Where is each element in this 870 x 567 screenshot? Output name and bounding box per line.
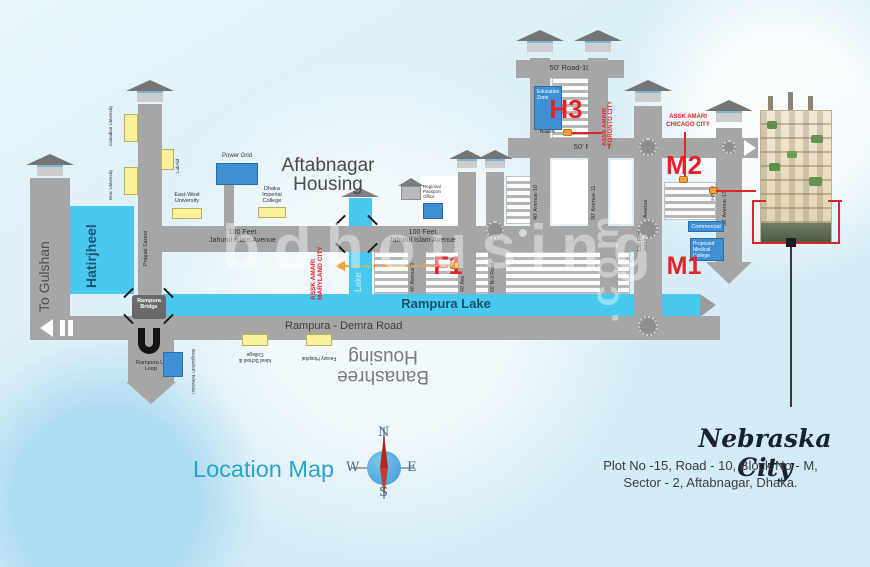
n3-road-label: 60' N-3 Road [490, 254, 504, 292]
hatirjheel-lake: Hatirjheel [70, 206, 134, 294]
road-gate-icon [516, 30, 564, 52]
road-west-bar-icon [60, 320, 65, 336]
chicago-pointer-line [684, 132, 686, 178]
road-9-small-label: Road-9 [540, 129, 564, 134]
project-address-line2: Sector - 2, Aftabnagar, Dhaka. [588, 475, 833, 492]
toronto-city-label: ASSK AMARI TORONTO CITY [602, 88, 624, 146]
building-frame [752, 200, 840, 244]
roundabout-icon [486, 221, 504, 239]
chicago-city-label: ASSK AMARI CHICAGO CITY [660, 114, 716, 132]
avenue-100ft-label-east: 100 Feet Jahurul Islam Avenue [375, 229, 470, 251]
farazy-hospital-box [306, 334, 332, 346]
rampura-bridge-box: Rampura Bridge [132, 295, 166, 319]
leader-node-icon [786, 238, 796, 247]
uloop-arrow-icon [126, 382, 176, 404]
to-gulshan-label: To Gulshan [36, 192, 64, 312]
labaid-label: LabAid [175, 147, 185, 173]
passport-box [423, 203, 443, 219]
ideal-school-box [242, 334, 268, 346]
dhaka-imperial-box [258, 207, 286, 218]
road-9-exit-arrow-icon [744, 140, 756, 156]
btv-label: Bangladesh Television [185, 349, 196, 383]
lake-end-arrow-icon [700, 294, 716, 317]
minor-road-b [486, 172, 504, 226]
block-m1-label: M1 [660, 252, 708, 282]
road-gate-icon [26, 154, 74, 176]
roundabout-icon [638, 219, 658, 239]
avenue-100ft-label-l1: 100 Feet [195, 229, 290, 237]
building-plant-icon [769, 163, 780, 171]
building-spire-icon [788, 92, 793, 112]
canadian-university-box [124, 114, 138, 142]
roundabout-icon [722, 140, 736, 154]
banashree-title-l1: Banashree [318, 366, 448, 386]
road-gate-icon [126, 80, 174, 102]
building-frame-tick [828, 200, 842, 202]
project-address-line1: Plot No -15, Road - 10, Block No - M, [588, 458, 833, 475]
toronto-l2: TORONTO CITY [608, 88, 614, 146]
pragati-sarani-road: Pragati Sarani [138, 104, 162, 316]
hatirjheel-label: Hatirjheel [84, 212, 120, 288]
road-dot-icon [519, 229, 527, 237]
project-address: Plot No -15, Road - 10, Block No - M, Se… [588, 458, 833, 498]
aftabnagar-title-l2: Housing [278, 175, 378, 194]
road-west-arrow-icon [40, 319, 53, 337]
road-gate-icon [477, 150, 513, 168]
commercial-box: Commercial [688, 221, 724, 232]
east-west-university-label: East-West University [168, 192, 206, 207]
btv-box [163, 352, 183, 377]
aftabnagar-title: Aftabnagar Housing [278, 156, 378, 198]
location-map-canvas: Hatirjheel Rampura Lake Lake To Gulshan … [0, 0, 870, 567]
compass-w: W [346, 460, 359, 475]
compass-e: E [407, 460, 417, 475]
plots-mid [506, 176, 532, 224]
brac-university-box [124, 167, 138, 195]
plot-white-2 [552, 160, 588, 224]
avenue-100ft-label-l2: Jahurul Islam Avenue [195, 237, 290, 245]
canadian-university-label: Canadian University [108, 112, 123, 146]
compass-n: N [378, 425, 389, 440]
chicago-l1: ASSK AMARI [660, 114, 716, 122]
building-plant-icon [767, 121, 777, 129]
power-grid-label: Power Grid [213, 153, 261, 162]
power-grid-stem [224, 184, 234, 226]
building-plant-icon [809, 177, 822, 186]
chicago-l2: CHICAGO CITY [660, 122, 716, 130]
maryland-l2: MARYLAND CITY [317, 226, 324, 300]
passport-roof-icon [398, 178, 424, 186]
toronto-pointer-line [572, 132, 602, 134]
rampura-lake-label: Rampura Lake [398, 297, 494, 314]
road-gate-icon [574, 30, 622, 52]
passport-label: Regional Passport Office [423, 184, 447, 202]
roundabout-icon [639, 138, 657, 156]
road-west-bar-icon [68, 320, 73, 336]
farazy-hospital-label: Farazy Hospital [300, 348, 338, 360]
n3-road: 60' N-3 Road [488, 252, 506, 294]
toronto-site-marker [563, 129, 572, 136]
u-loop-icon [138, 328, 160, 354]
avenue-9-label: 40' Avenue-9 [410, 254, 424, 292]
to-gulshan-road: To Gulshan [30, 178, 70, 324]
pragati-sarani-label: Pragati Sarani [143, 200, 158, 266]
compass-s: S [379, 485, 388, 500]
avenue-10-label: 40' Avenue-10 [533, 162, 547, 220]
east-west-university-box [172, 208, 202, 219]
block-h3-label: H3 [544, 94, 588, 124]
project-name: Nebraska City [680, 424, 850, 456]
bridge-tick-icon [335, 215, 346, 226]
labaid-box [161, 149, 174, 170]
location-map-title: Location Map [193, 456, 353, 486]
ideal-school-label: Ideal School & College [232, 348, 278, 362]
avenue-100ft-label-l1: 100 Feet [375, 229, 470, 237]
power-grid-box [216, 163, 258, 185]
building-frame-tick [752, 200, 766, 202]
avenue-10-road: 40' Avenue-10 [530, 58, 550, 226]
avenue-13-label: 50' Avenue-13 [722, 164, 736, 226]
avenue-9-road: 40' Avenue-9 [408, 252, 426, 294]
roundabout-icon [638, 316, 658, 336]
aftabnagar-title-l1: Aftabnagar [278, 156, 378, 175]
road-gate-icon [624, 80, 672, 102]
leader-line [790, 247, 792, 407]
avenue-11-label: 50' Avenue-11 [591, 162, 605, 220]
passport-house-icon [401, 186, 421, 200]
building-pointer-line [716, 190, 756, 192]
maryland-arrowhead-icon [335, 261, 345, 271]
maryland-site-marker [450, 262, 459, 269]
avenue-100ft-label-l2: Jahurul Islam Avenue [375, 237, 470, 245]
avenue-100ft-label-west: 100 Feet Jahurul Islam Avenue [195, 229, 290, 251]
building-plant-icon [811, 135, 823, 143]
plot-white-3 [610, 160, 632, 224]
maryland-arrow-line [344, 265, 456, 267]
brac-university-label: Brac University [108, 164, 123, 200]
avenue-13-end-arrow-icon [706, 262, 752, 284]
chicago-site-marker [679, 176, 688, 183]
minor-road-c [600, 252, 618, 294]
commercial-label: Commercial [691, 224, 720, 230]
maryland-l1: ASSK AMARI [310, 226, 317, 300]
minor-road-a [458, 172, 476, 226]
maryland-city-label: ASSK AMARI MARYLAND CITY [310, 226, 336, 300]
building-plant-icon [787, 151, 797, 158]
rampura-bridge-label: Rampura Bridge [133, 298, 165, 310]
